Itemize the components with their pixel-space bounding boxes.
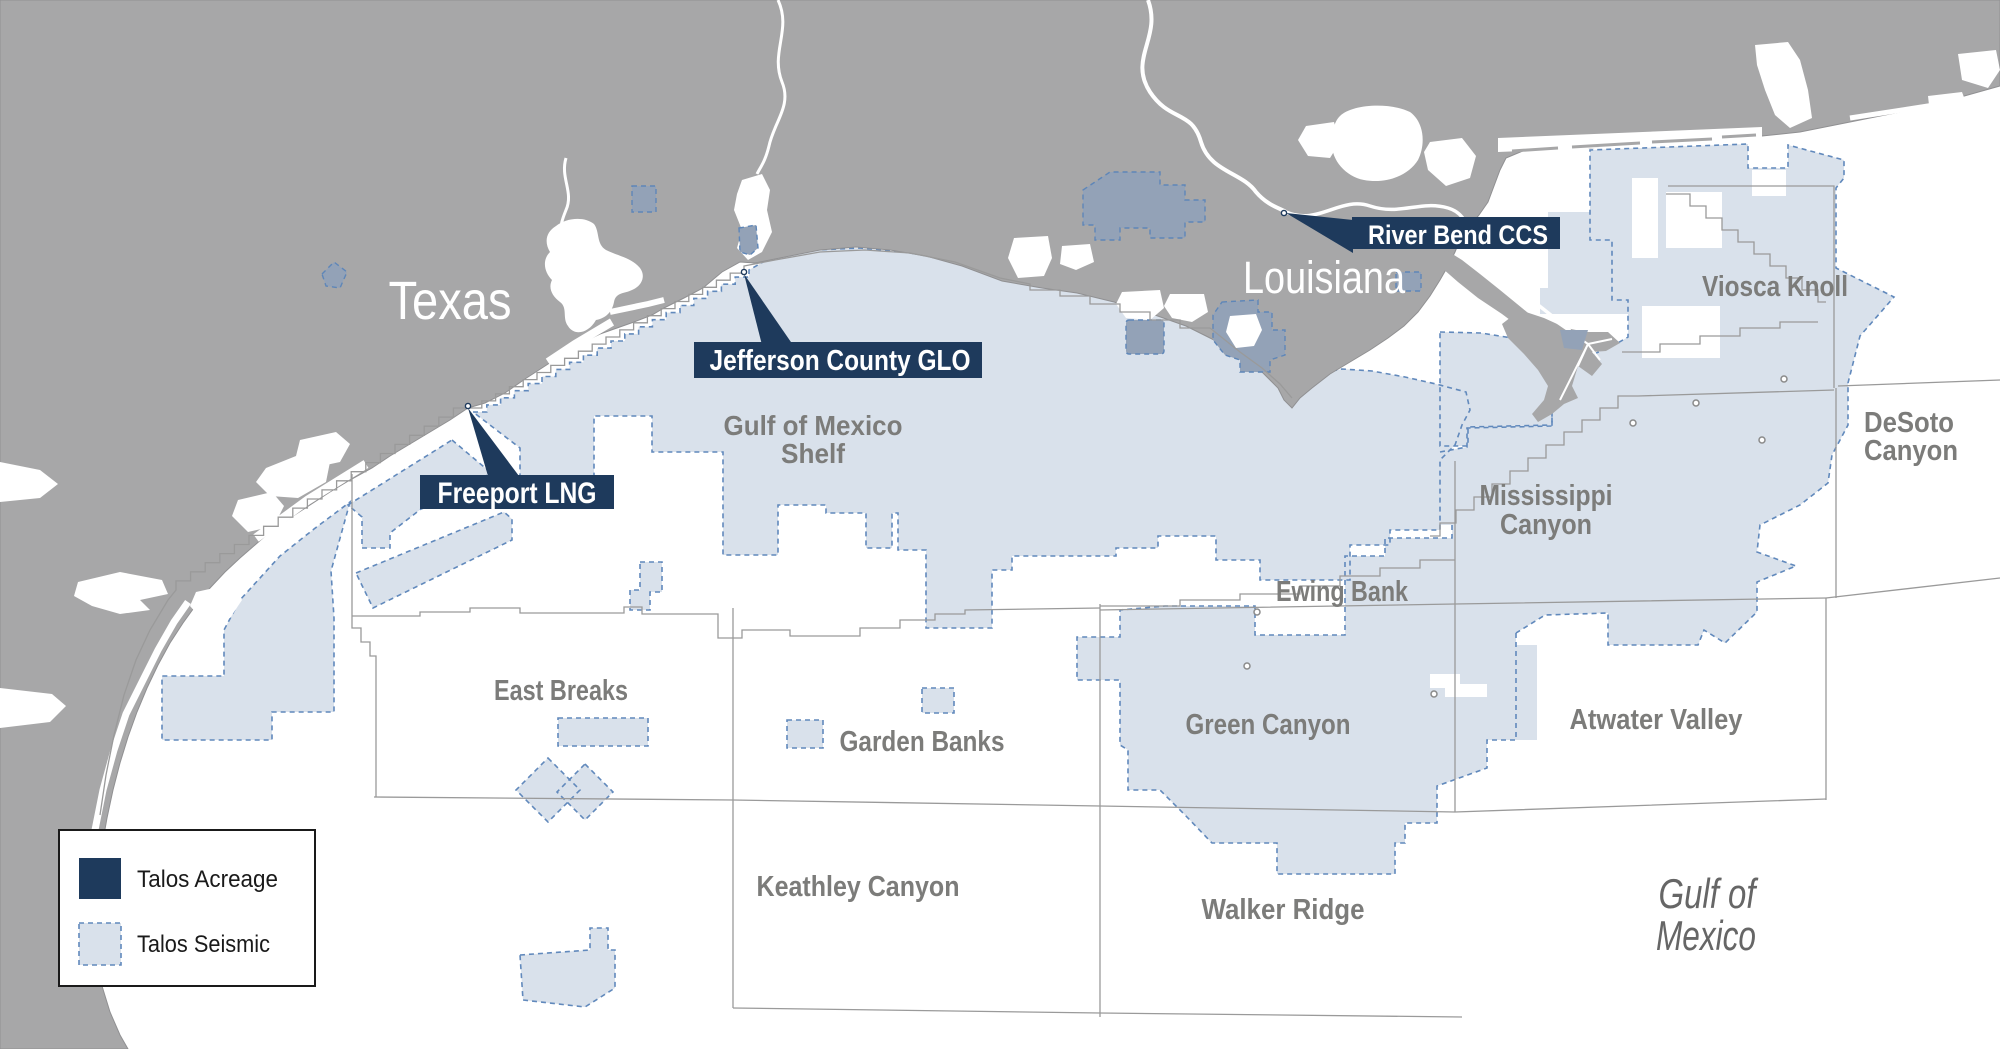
svg-text:Louisiana: Louisiana <box>1243 252 1406 303</box>
svg-text:Green Canyon: Green Canyon <box>1186 709 1351 741</box>
svg-text:Shelf: Shelf <box>781 438 846 469</box>
svg-text:Texas: Texas <box>389 271 512 331</box>
svg-text:Keathley Canyon: Keathley Canyon <box>757 871 960 903</box>
svg-text:Jefferson County GLO: Jefferson County GLO <box>710 345 971 377</box>
svg-text:East Breaks: East Breaks <box>494 675 628 707</box>
svg-text:Ewing Bank: Ewing Bank <box>1276 576 1409 608</box>
svg-text:Mississippi: Mississippi <box>1480 480 1613 512</box>
svg-text:Canyon: Canyon <box>1864 435 1958 467</box>
svg-text:Canyon: Canyon <box>1500 509 1592 541</box>
svg-text:Talos Acreage: Talos Acreage <box>137 866 278 893</box>
svg-text:Talos Seismic: Talos Seismic <box>137 931 270 958</box>
svg-text:Freeport LNG: Freeport LNG <box>438 477 597 510</box>
svg-text:Gulf of Mexico: Gulf of Mexico <box>724 410 903 441</box>
svg-text:Walker Ridge: Walker Ridge <box>1202 894 1365 926</box>
svg-text:Gulf of: Gulf of <box>1659 870 1759 917</box>
svg-text:Mexico: Mexico <box>1656 912 1756 959</box>
svg-text:Atwater Valley: Atwater Valley <box>1570 704 1743 736</box>
svg-text:Garden Banks: Garden Banks <box>840 726 1005 758</box>
svg-text:Viosca Knoll: Viosca Knoll <box>1702 271 1848 303</box>
svg-text:River Bend CCS: River Bend CCS <box>1368 220 1548 250</box>
